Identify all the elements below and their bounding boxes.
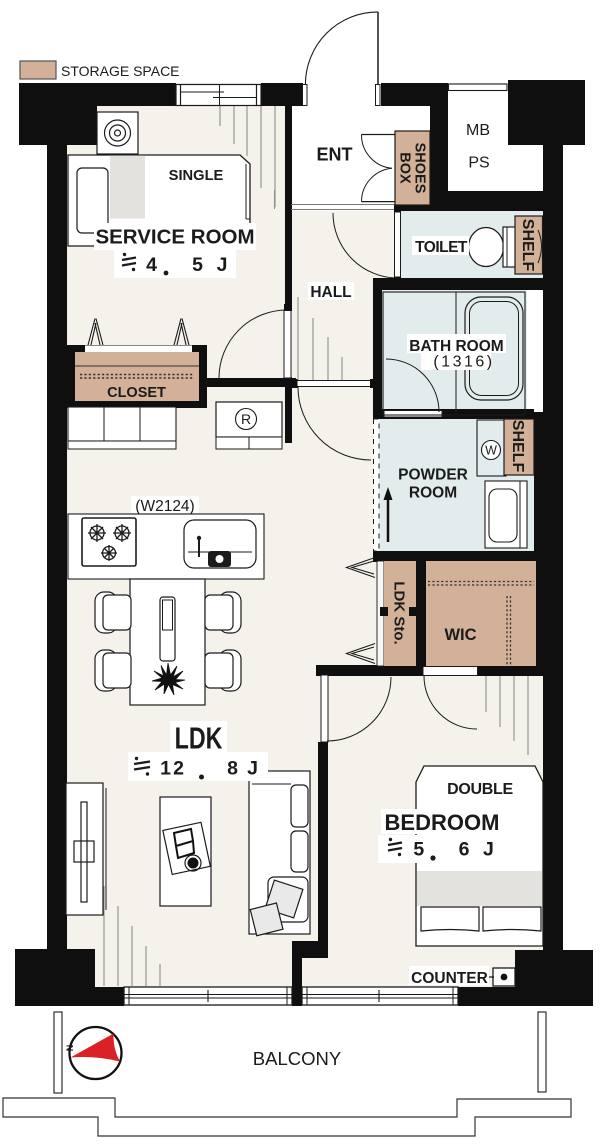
svg-text:SINGLE: SINGLE [169, 168, 224, 184]
svg-text:5: 5 [192, 254, 203, 276]
svg-text:6: 6 [459, 839, 470, 861]
svg-text:BATH ROOM: BATH ROOM [409, 338, 503, 355]
svg-text:1: 1 [160, 758, 171, 780]
svg-text:J: J [483, 839, 494, 861]
svg-text:N: N [65, 1045, 75, 1052]
svg-text:R: R [241, 411, 251, 427]
svg-text:BALCONY: BALCONY [253, 1048, 341, 1069]
svg-text:WIC: WIC [444, 626, 476, 644]
svg-text:POWDER: POWDER [398, 467, 468, 484]
svg-text:BEDROOM: BEDROOM [385, 810, 500, 835]
svg-text:COUNTER: COUNTER [411, 970, 488, 987]
svg-text:SHOES: SHOES [412, 143, 428, 194]
svg-text:4: 4 [146, 254, 157, 276]
svg-text:LDK Sto.: LDK Sto. [391, 581, 408, 644]
svg-text:J: J [217, 254, 228, 276]
svg-text:STORAGE SPACE: STORAGE SPACE [61, 63, 180, 79]
svg-text:J: J [247, 758, 258, 780]
svg-text:HALL: HALL [310, 284, 351, 301]
svg-text:(1316): (1316) [433, 354, 494, 371]
svg-text:CLOSET: CLOSET [107, 385, 166, 401]
svg-text:SHELF: SHELF [519, 219, 536, 272]
svg-text:W: W [485, 444, 497, 458]
svg-text:SERVICE ROOM: SERVICE ROOM [95, 226, 254, 249]
svg-text:BOX: BOX [397, 152, 413, 184]
svg-text:2: 2 [173, 758, 184, 780]
svg-text:8: 8 [227, 758, 238, 780]
svg-text:DOUBLE: DOUBLE [447, 781, 513, 798]
svg-text:PS: PS [468, 155, 489, 172]
svg-text:5: 5 [413, 839, 424, 861]
svg-text:LDK: LDK [175, 720, 223, 755]
svg-text:(W2124): (W2124) [135, 498, 194, 515]
svg-text:ROOM: ROOM [409, 485, 457, 502]
svg-text:TOILET: TOILET [415, 239, 468, 256]
svg-text:SHELF: SHELF [509, 420, 526, 473]
svg-text:ENT: ENT [317, 145, 353, 165]
svg-text:MB: MB [466, 122, 490, 139]
